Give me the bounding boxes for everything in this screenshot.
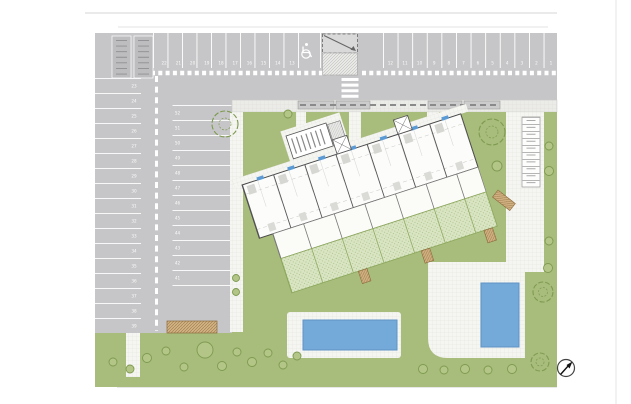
parking-stall-number: 35 (131, 264, 137, 269)
parking-stall-number: 52 (175, 111, 181, 116)
parking-stall-number: 30 (131, 189, 137, 194)
parking-stall-number: 43 (175, 246, 181, 251)
parking-stall-number: 17 (233, 61, 239, 66)
parking-stall-number: 9 (433, 61, 436, 66)
parking-stall-number: 8 (447, 61, 450, 66)
site-plan-drawing: 1234567891011121314151617181920212223242… (0, 0, 631, 404)
parking-stall-number: 39 (131, 324, 137, 329)
parking-stall-number: 37 (131, 294, 137, 299)
parking-stall-number: 50 (175, 141, 181, 146)
parking-stall-number: 27 (131, 144, 137, 149)
parking-stall-number: 5 (491, 61, 494, 66)
entrance-ramp (323, 34, 358, 75)
swimming-pool-horizontal (303, 320, 397, 350)
parking-stall-number: 46 (175, 201, 181, 206)
parking-stall-number: 25 (131, 114, 137, 119)
parking-stall-number: 48 (175, 171, 181, 176)
parking-stall-number: 16 (247, 61, 253, 66)
parking-stall-number: 2 (535, 61, 538, 66)
pergola (167, 321, 217, 333)
site-plan-page: 1234567891011121314151617181920212223242… (0, 0, 631, 404)
parking-stall-number: 33 (131, 234, 137, 239)
parking-stall-number: 10 (417, 61, 423, 66)
parking-stall-number: 42 (175, 261, 181, 266)
parking-stall-number: 7 (462, 61, 465, 66)
parking-stall-number: 28 (131, 159, 137, 164)
parking-stall-number: 3 (520, 61, 523, 66)
parking-stall-number: 47 (175, 186, 181, 191)
parking-stall-number: 29 (131, 174, 137, 179)
parking-stall-number: 23 (131, 84, 137, 89)
parking-stall-number: 34 (131, 249, 137, 254)
parking-stall-number: 18 (218, 61, 224, 66)
parking-stall-number: 1 (550, 61, 553, 66)
storage-strip (522, 117, 540, 187)
parking-stall-number: 31 (131, 204, 137, 209)
parking-stall-number: 19 (204, 61, 210, 66)
parking-stall-number: 22 (162, 61, 168, 66)
parking-stall-number: 51 (175, 126, 181, 131)
parking-stall-number: 45 (175, 216, 181, 221)
parking-stall-number: 26 (131, 129, 137, 134)
parking-stall-number: 12 (388, 61, 394, 66)
parking-stall-number: 13 (289, 61, 295, 66)
parking-stall-number: 21 (176, 61, 182, 66)
parking-stall-number: 32 (131, 219, 137, 224)
parking-stall-number: 41 (175, 276, 181, 281)
parking-stall-number: 44 (175, 231, 181, 236)
compass-needle-icon (558, 360, 575, 377)
parking-stall-number: 6 (477, 61, 480, 66)
parking-stall-number: 15 (261, 61, 267, 66)
parking-stall-number: 38 (131, 309, 137, 314)
swimming-pool-vertical (481, 283, 519, 347)
parking-stall-number: 14 (275, 61, 281, 66)
parking-stall-number: 4 (506, 61, 509, 66)
parking-stall-number: 49 (175, 156, 181, 161)
parking-stall-number: 11 (402, 61, 408, 66)
parking-stall-number: 20 (190, 61, 196, 66)
parking-stall-number: 36 (131, 279, 137, 284)
west-path (230, 112, 243, 332)
parking-stall-number: 24 (131, 99, 137, 104)
